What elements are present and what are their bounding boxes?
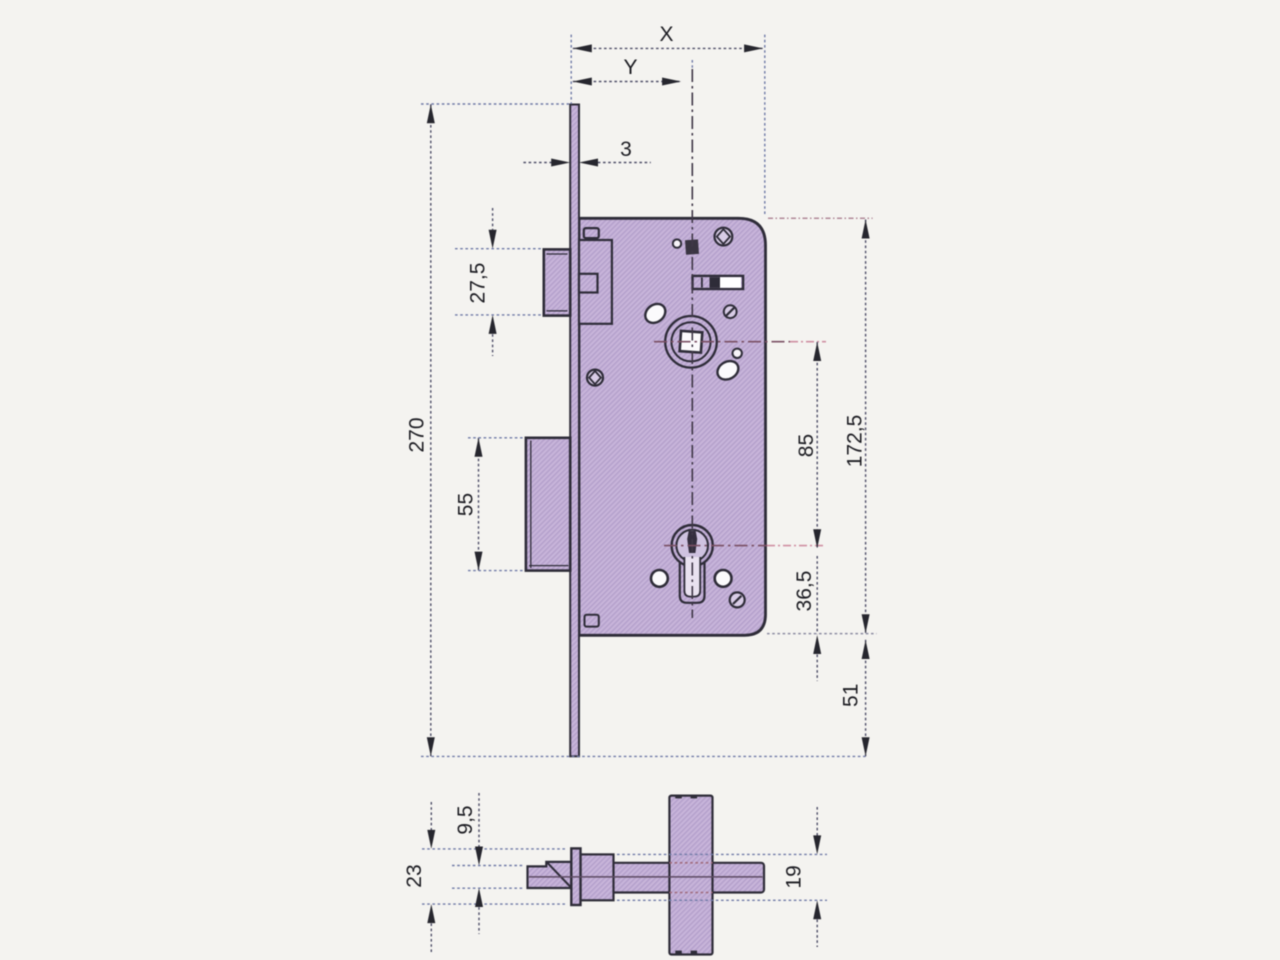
svg-text:19: 19	[782, 865, 805, 888]
svg-text:X: X	[659, 23, 673, 46]
svg-text:9,5: 9,5	[454, 805, 477, 834]
svg-text:3: 3	[620, 138, 632, 161]
svg-text:51: 51	[840, 684, 863, 707]
svg-text:85: 85	[795, 434, 818, 457]
svg-text:172,5: 172,5	[844, 415, 867, 468]
svg-text:27,5: 27,5	[467, 263, 490, 304]
svg-text:270: 270	[406, 417, 429, 452]
svg-text:Y: Y	[623, 56, 637, 79]
svg-text:36,5: 36,5	[793, 571, 816, 612]
svg-text:55: 55	[455, 493, 478, 516]
svg-text:23: 23	[403, 864, 426, 887]
